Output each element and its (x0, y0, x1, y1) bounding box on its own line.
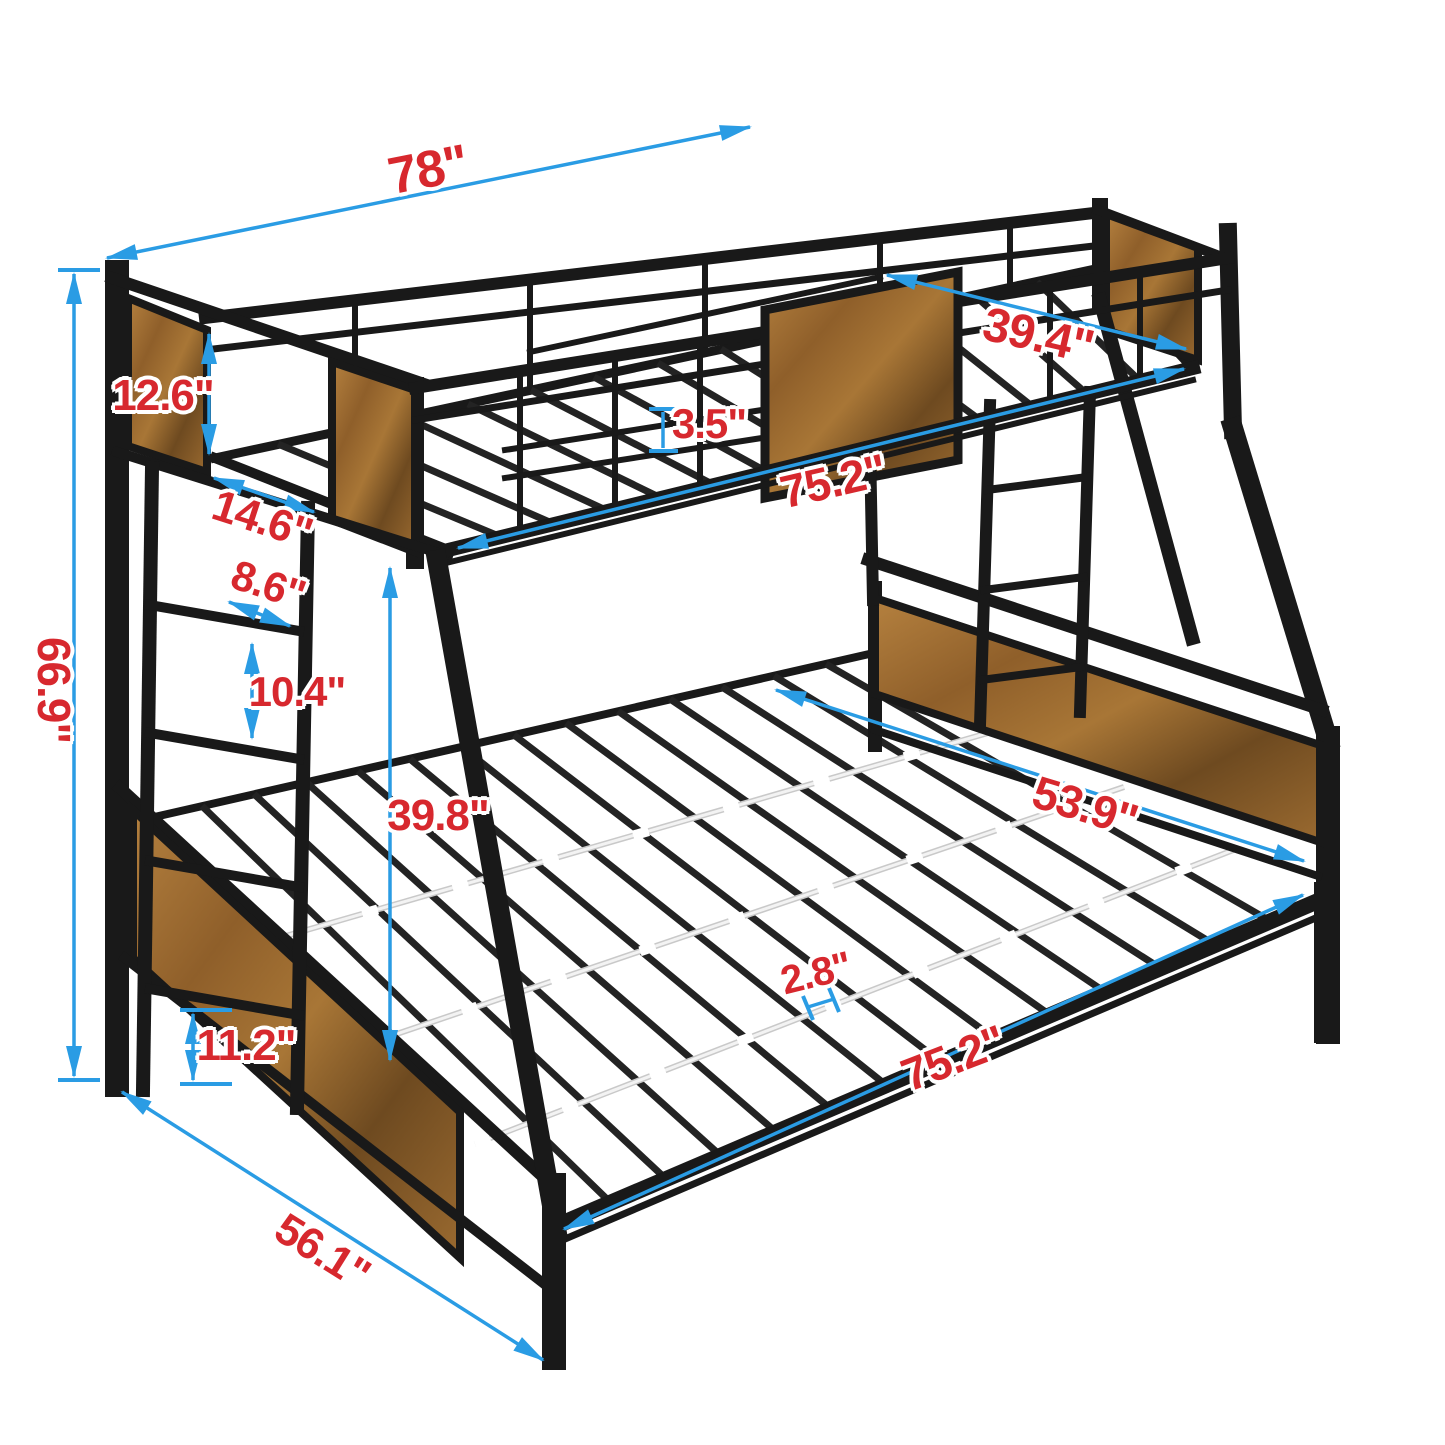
dim-label-66-9: 66.9" (27, 637, 81, 743)
dim-label-3-5: 3.5" (672, 400, 746, 448)
dim-label-12-6: 12.6" (112, 371, 214, 421)
dimension-diagram: 78" 66.9" 12.6" 14.6" 8.6" 10.4" 3.5" 75… (0, 0, 1445, 1445)
dim-label-39-8: 39.8" (387, 791, 489, 841)
wood-panel-foot (1106, 214, 1198, 360)
bunk-bed-illustration (0, 0, 1445, 1445)
dim-label-10-4: 10.4" (249, 668, 346, 716)
dim-label-11-2: 11.2" (196, 1021, 295, 1071)
